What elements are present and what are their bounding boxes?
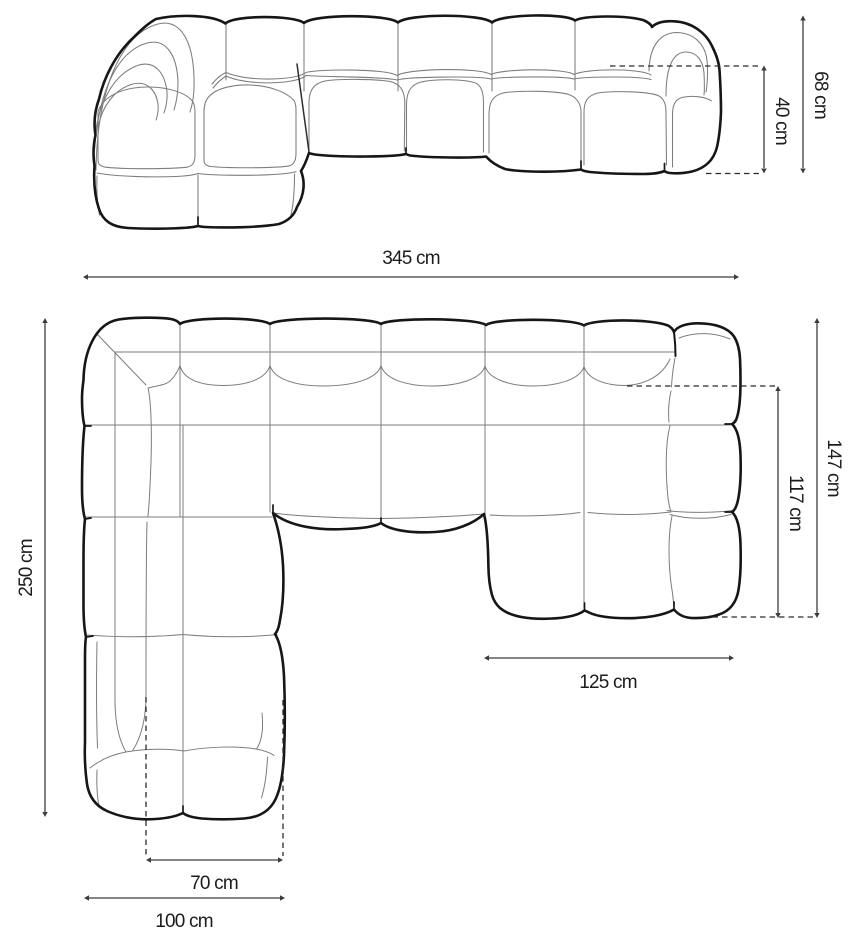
svg-text:68 cm: 68 cm bbox=[810, 71, 831, 119]
svg-text:125 cm: 125 cm bbox=[579, 672, 637, 693]
svg-text:100 cm: 100 cm bbox=[155, 911, 213, 932]
svg-text:147 cm: 147 cm bbox=[823, 439, 844, 497]
svg-text:345 cm: 345 cm bbox=[382, 248, 440, 269]
svg-text:117 cm: 117 cm bbox=[785, 475, 806, 531]
svg-text:70 cm: 70 cm bbox=[190, 873, 238, 894]
svg-text:40 cm: 40 cm bbox=[771, 97, 792, 145]
svg-text:250 cm: 250 cm bbox=[16, 539, 37, 597]
